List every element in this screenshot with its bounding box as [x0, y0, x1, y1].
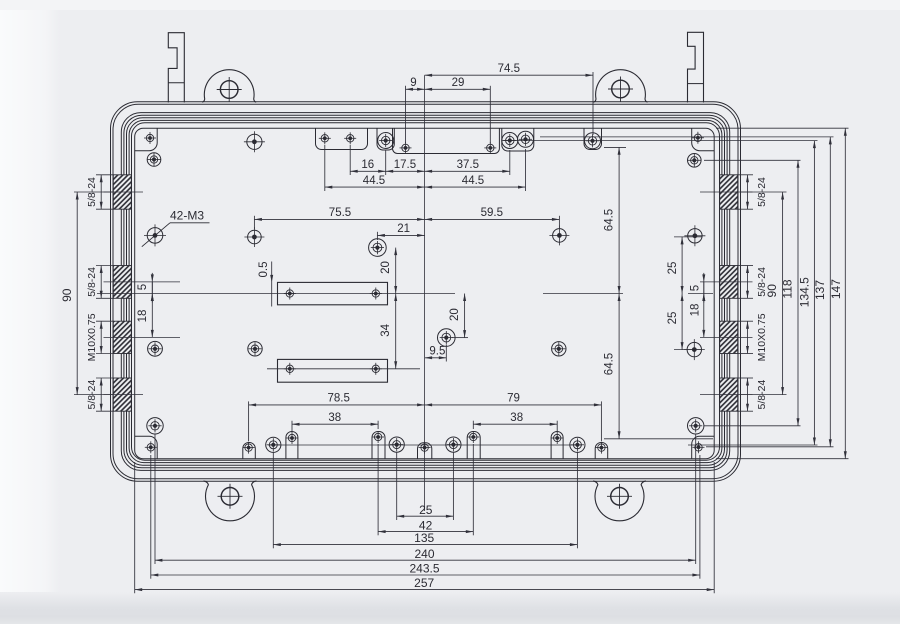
svg-text:59.5: 59.5 — [481, 207, 503, 219]
svg-text:75.5: 75.5 — [329, 207, 351, 219]
svg-text:137: 137 — [813, 280, 827, 300]
svg-text:118: 118 — [781, 279, 795, 298]
svg-text:25: 25 — [419, 503, 433, 517]
svg-text:18: 18 — [137, 310, 149, 323]
svg-text:20: 20 — [380, 261, 392, 274]
svg-text:25: 25 — [667, 262, 679, 275]
svg-text:9.5: 9.5 — [429, 346, 445, 358]
svg-text:44.5: 44.5 — [363, 175, 385, 187]
svg-text:42-M3: 42-M3 — [170, 209, 204, 223]
svg-text:44.5: 44.5 — [462, 175, 484, 187]
svg-text:9: 9 — [410, 77, 416, 89]
svg-text:147: 147 — [829, 279, 843, 299]
svg-text:240: 240 — [414, 547, 434, 561]
svg-text:5/8-24: 5/8-24 — [86, 267, 98, 297]
svg-text:0.5: 0.5 — [258, 262, 270, 278]
svg-text:64.5: 64.5 — [603, 353, 615, 375]
svg-text:64.5: 64.5 — [603, 209, 615, 231]
svg-text:5/8-24: 5/8-24 — [86, 380, 98, 410]
svg-text:5/8-24: 5/8-24 — [86, 177, 98, 207]
svg-text:20: 20 — [449, 308, 461, 321]
svg-text:25: 25 — [667, 312, 679, 325]
svg-text:257: 257 — [414, 576, 434, 590]
svg-text:90: 90 — [60, 288, 74, 302]
svg-text:16: 16 — [361, 159, 374, 171]
svg-text:5/8-24: 5/8-24 — [756, 177, 768, 207]
svg-text:38: 38 — [510, 412, 523, 424]
svg-text:5: 5 — [137, 284, 149, 290]
svg-text:5/8-24: 5/8-24 — [756, 380, 768, 410]
svg-text:38: 38 — [328, 412, 341, 424]
svg-text:79: 79 — [507, 393, 520, 405]
svg-text:243.5: 243.5 — [409, 562, 439, 576]
svg-text:M10X0.75: M10X0.75 — [756, 313, 768, 361]
svg-text:29: 29 — [452, 77, 465, 89]
svg-text:5/8-24: 5/8-24 — [756, 267, 768, 297]
svg-text:18: 18 — [690, 304, 702, 317]
svg-text:34: 34 — [380, 323, 392, 336]
svg-text:135: 135 — [414, 531, 434, 545]
svg-text:134.5: 134.5 — [797, 277, 811, 307]
svg-text:M10X0.75: M10X0.75 — [86, 313, 98, 361]
svg-text:42: 42 — [419, 518, 433, 532]
svg-text:37.5: 37.5 — [457, 159, 479, 171]
svg-text:5: 5 — [690, 285, 702, 291]
svg-text:17.5: 17.5 — [394, 159, 416, 171]
svg-text:21: 21 — [397, 223, 410, 235]
svg-text:74.5: 74.5 — [498, 63, 520, 75]
svg-text:78.5: 78.5 — [328, 393, 350, 405]
